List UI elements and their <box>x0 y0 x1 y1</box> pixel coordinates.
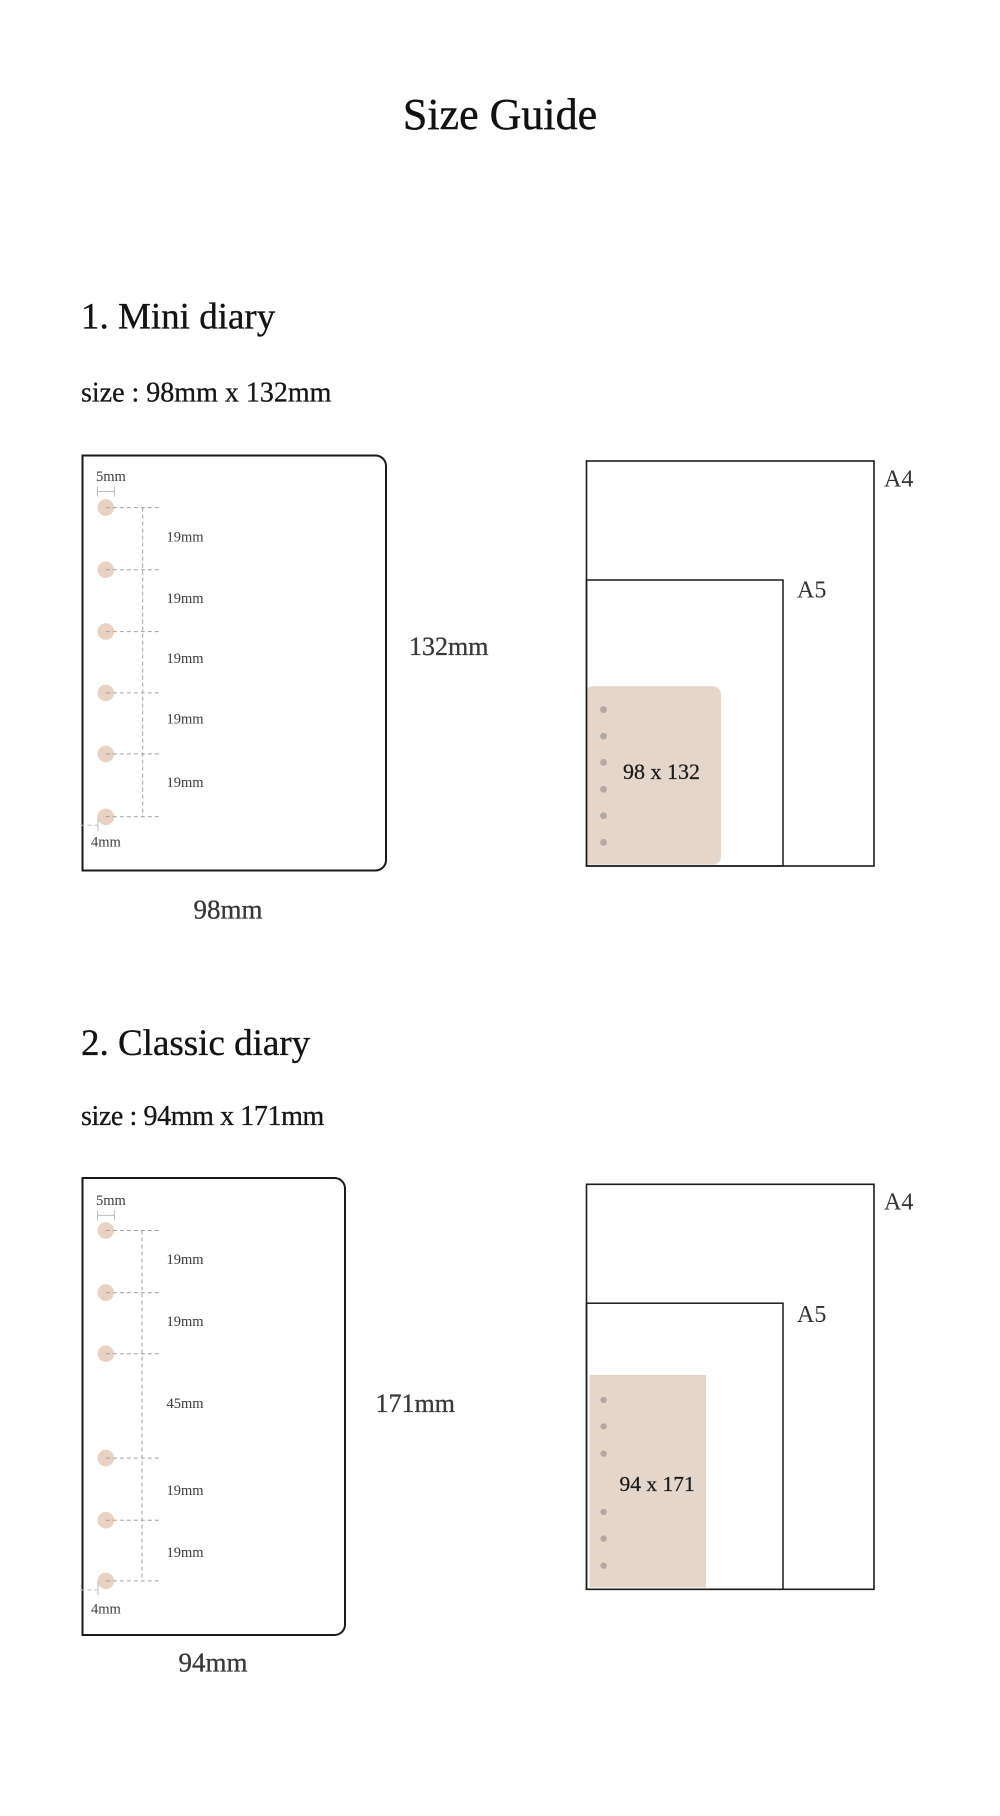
svg-text:5mm: 5mm <box>96 1193 127 1209</box>
svg-text:A5: A5 <box>797 578 826 604</box>
svg-text:94 x 171: 94 x 171 <box>620 1472 695 1496</box>
svg-text:size : 98mm x 132mm: size : 98mm x 132mm <box>81 378 332 409</box>
svg-text:19mm: 19mm <box>167 711 205 727</box>
svg-text:A4: A4 <box>884 1190 913 1216</box>
svg-text:Size Guide: Size Guide <box>403 90 597 139</box>
svg-text:19mm: 19mm <box>167 1252 205 1268</box>
svg-text:19mm: 19mm <box>167 775 205 791</box>
svg-text:19mm: 19mm <box>167 1314 205 1330</box>
svg-text:4mm: 4mm <box>91 835 122 851</box>
svg-text:19mm: 19mm <box>167 1483 205 1499</box>
svg-text:98 x 132: 98 x 132 <box>623 759 700 784</box>
svg-text:132mm: 132mm <box>409 632 488 661</box>
svg-text:1. Mini diary: 1. Mini diary <box>81 297 276 338</box>
svg-text:19mm: 19mm <box>167 651 205 667</box>
svg-text:A5: A5 <box>797 1302 826 1328</box>
svg-text:2. Classic diary: 2. Classic diary <box>81 1023 311 1064</box>
svg-text:98mm: 98mm <box>194 895 263 925</box>
svg-text:45mm: 45mm <box>167 1396 205 1412</box>
svg-text:19mm: 19mm <box>167 530 205 546</box>
svg-text:A4: A4 <box>884 467 913 493</box>
svg-text:4mm: 4mm <box>91 1602 122 1618</box>
svg-text:19mm: 19mm <box>167 591 205 607</box>
svg-text:19mm: 19mm <box>167 1545 205 1561</box>
svg-text:size : 94mm x 171mm: size : 94mm x 171mm <box>81 1101 324 1132</box>
svg-text:94mm: 94mm <box>179 1648 248 1678</box>
svg-text:171mm: 171mm <box>376 1389 455 1418</box>
svg-text:5mm: 5mm <box>96 469 127 485</box>
